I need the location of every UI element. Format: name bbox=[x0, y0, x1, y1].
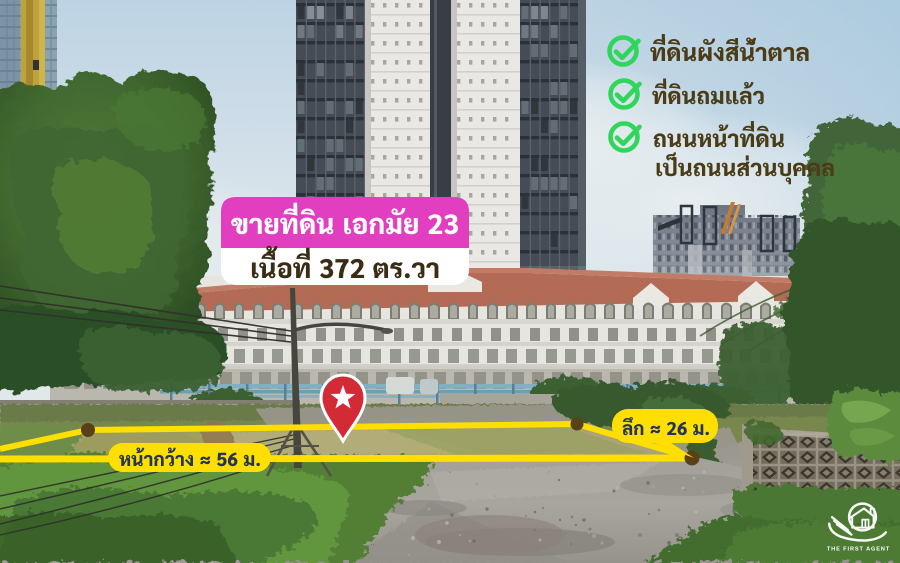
svg-text:THE FIRST AGENT: THE FIRST AGENT bbox=[827, 547, 890, 553]
